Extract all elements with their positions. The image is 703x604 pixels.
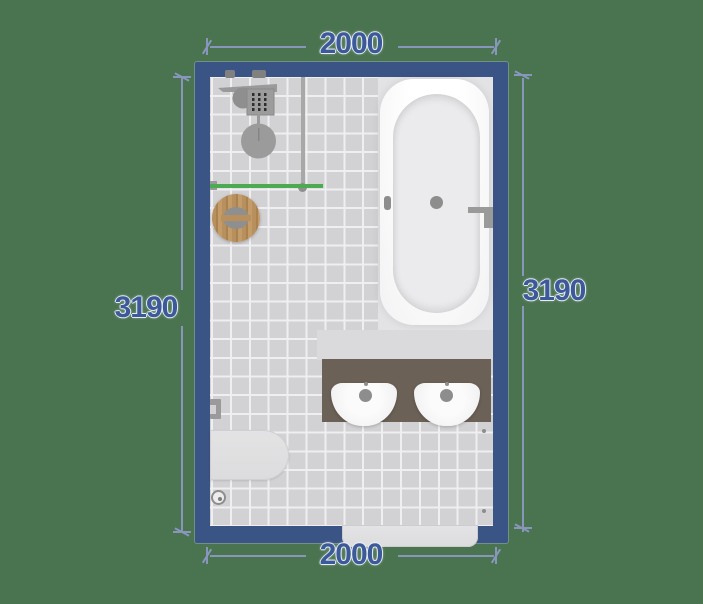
toilet-paper-holder[interactable] — [210, 398, 223, 420]
shower-partition-highlighted[interactable] — [210, 184, 323, 188]
bathtub-zone — [378, 77, 493, 332]
dimension-label-bottom: 2000 — [320, 538, 383, 572]
floor-drain[interactable] — [211, 490, 226, 505]
bathtub-handle-icon — [384, 196, 391, 210]
bathtub-drain-icon — [430, 196, 443, 209]
dimension-label-top: 2000 — [320, 27, 383, 61]
dimension-line — [398, 555, 494, 557]
floor-drain-dot-icon — [218, 497, 222, 501]
dimension-line — [398, 46, 494, 48]
dimension-line — [522, 306, 524, 532]
washbasin-left-tap-icon — [364, 382, 368, 386]
stool-grain-icon — [221, 215, 251, 221]
double-washbasin-vanity[interactable] — [317, 330, 493, 430]
paper-holder-notch-icon — [210, 405, 216, 414]
floorplan-canvas: 2000 2000 3190 3190 — [0, 0, 703, 604]
shower-set[interactable] — [215, 68, 300, 160]
wall-anchor-dot-icon — [482, 509, 486, 513]
dimension-line — [210, 555, 306, 557]
dimension-line — [181, 326, 183, 533]
vanity-zone — [317, 330, 493, 360]
washbasin-left-drain-icon — [359, 389, 372, 402]
dimension-line — [210, 46, 306, 48]
dimension-label-left: 3190 — [115, 291, 178, 325]
dimension-label-right: 3190 — [523, 274, 586, 308]
dimension-line — [522, 78, 524, 276]
shower-head-icon — [215, 68, 300, 160]
dimension-line — [181, 77, 183, 290]
washbasin-right-drain-icon — [440, 389, 453, 402]
wooden-stool[interactable] — [212, 194, 260, 242]
bathtub-faucet-body-icon — [484, 213, 493, 228]
toilet[interactable] — [210, 430, 289, 480]
wall-anchor-dot-icon — [482, 429, 486, 433]
shower-glass-panel[interactable] — [301, 77, 305, 187]
washbasin-right-tap-icon — [445, 382, 449, 386]
